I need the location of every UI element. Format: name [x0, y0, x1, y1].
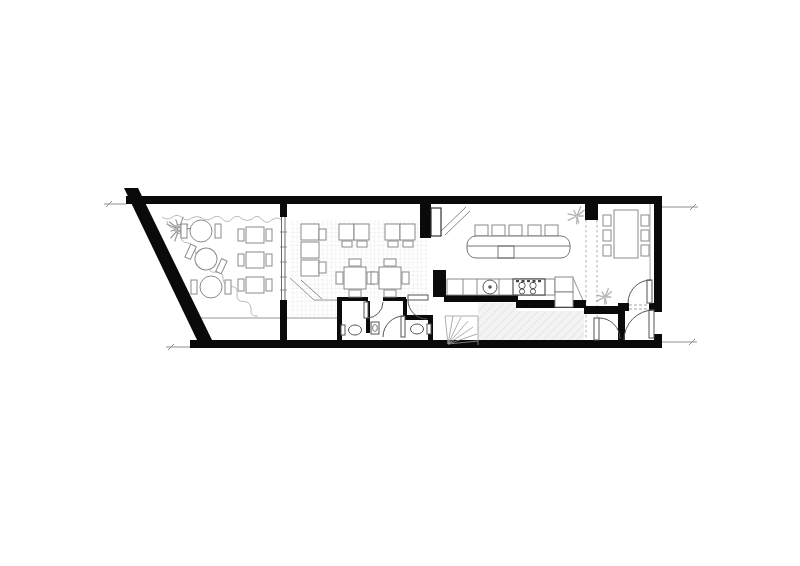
- stove-knob: [527, 280, 530, 282]
- counter-box-2: [555, 292, 573, 307]
- terrace-square-table: [238, 277, 272, 293]
- banquette-side-table: [319, 229, 326, 240]
- wall-kitchen-a: [444, 295, 518, 302]
- toilet-tank: [341, 325, 345, 335]
- wall-kitchen-c: [584, 306, 620, 314]
- dining-chair: [342, 241, 352, 247]
- storefront-glazing: [280, 217, 287, 300]
- rear-dining-chair: [603, 245, 611, 256]
- floor-plan-page: [0, 0, 800, 566]
- terrace-chair: [191, 280, 197, 294]
- dining-chair: [388, 241, 398, 247]
- dimension-line: [104, 201, 126, 207]
- wall-stub-kitchen-right: [585, 204, 598, 220]
- frond: [568, 217, 576, 221]
- wall-top: [126, 196, 662, 204]
- table-top: [614, 210, 638, 258]
- table-top: [339, 224, 354, 240]
- dining-chair: [384, 290, 396, 297]
- dining-chair: [403, 241, 413, 247]
- stove-knob: [516, 280, 519, 282]
- kitchen-stove: [513, 279, 545, 295]
- table-top: [385, 224, 400, 240]
- table-top: [246, 227, 264, 243]
- glazing-stub-top: [280, 204, 287, 217]
- dining-chair: [349, 259, 361, 266]
- frond: [597, 295, 604, 297]
- terrace-chair: [266, 279, 272, 291]
- wc2-door: [383, 316, 405, 337]
- wall-right-upper: [654, 196, 662, 312]
- table-top: [246, 252, 264, 268]
- table-top: [400, 224, 415, 240]
- table-top: [379, 267, 401, 289]
- wc-wall-top-right: [383, 297, 406, 301]
- glazing-stub-bottom: [280, 300, 287, 340]
- entry-inner-door-opening: [629, 303, 649, 311]
- terrace-round-table: [183, 241, 229, 278]
- wc1-door: [364, 302, 383, 318]
- dining-chair: [357, 241, 367, 247]
- hatched-floor-corridor: [478, 303, 584, 340]
- door-swing-arc: [599, 318, 620, 339]
- dining-chair: [402, 272, 409, 284]
- terrace-chair: [215, 224, 221, 238]
- rear-dining-chair: [641, 245, 649, 256]
- wall-dining-kitchen: [420, 204, 431, 238]
- terrace-chair: [238, 229, 244, 241]
- rear-dining-chair: [641, 230, 649, 241]
- wc-wall-lobby-base: [403, 315, 432, 320]
- wall-bottom: [190, 340, 662, 348]
- bar-stool: [509, 225, 522, 236]
- banquette-seat: [301, 242, 319, 258]
- dining-chair: [349, 290, 361, 297]
- sink-drain: [488, 285, 492, 289]
- dimension-line: [166, 344, 190, 350]
- vine-top: [162, 215, 282, 222]
- toilet-bowl: [349, 325, 362, 335]
- banquette-seat: [301, 224, 319, 240]
- bar-stool: [492, 225, 505, 236]
- frond: [602, 292, 604, 296]
- dining-chair: [384, 259, 396, 266]
- terrace-chair: [181, 224, 187, 238]
- terrace-square-table: [238, 227, 272, 243]
- wall-right-lower: [654, 334, 662, 348]
- stove-knob: [533, 280, 536, 282]
- rear-dining-chair: [603, 215, 611, 226]
- terrace-chair: [238, 279, 244, 291]
- table-top: [200, 276, 222, 298]
- bar-island: [467, 225, 570, 258]
- rear-dining-door: [628, 280, 652, 303]
- terrace-round-table: [191, 276, 231, 298]
- plant: [568, 207, 584, 224]
- toilet-tank: [427, 324, 431, 334]
- rear-dining-table: [603, 210, 649, 258]
- island-counter: [467, 236, 570, 258]
- wall-cabinet: [431, 208, 441, 236]
- table-top: [344, 267, 366, 289]
- terrace-chair: [185, 244, 196, 259]
- table-top: [190, 220, 212, 242]
- tiled-floor-dining-sw: [290, 298, 338, 318]
- terrace-chair: [266, 229, 272, 241]
- stove-knob: [522, 280, 525, 282]
- dining-chair: [371, 272, 378, 284]
- bar-stool: [528, 225, 541, 236]
- rear-dining-chair: [641, 215, 649, 226]
- table-top: [246, 277, 264, 293]
- stove-knob: [538, 280, 541, 282]
- counter-box-1: [555, 277, 573, 292]
- frond: [568, 214, 576, 216]
- wall-pass-left: [433, 270, 446, 297]
- frond: [597, 297, 604, 300]
- terrace-square-table: [238, 252, 272, 268]
- terrace-chair: [225, 280, 231, 294]
- toilet: [411, 324, 432, 334]
- dimension-line: [662, 204, 698, 210]
- frond: [574, 211, 577, 215]
- rear-dining-chair: [603, 230, 611, 241]
- corridor-door: [594, 318, 620, 340]
- dimension-line: [662, 339, 697, 345]
- banquette-seat: [301, 260, 319, 276]
- bar-stool: [475, 225, 488, 236]
- wc-wall-lobby: [403, 299, 407, 316]
- entry-door: [624, 310, 654, 340]
- toilet-bowl: [411, 324, 424, 334]
- entry-inner-opening: [629, 303, 649, 311]
- bar-stool: [545, 225, 558, 236]
- banquette-side-table: [319, 262, 326, 273]
- terrace-chair: [216, 259, 227, 274]
- terrace-chair: [266, 254, 272, 266]
- terrace-chair: [238, 254, 244, 266]
- dining-chair: [336, 272, 343, 284]
- plant: [597, 289, 611, 304]
- floor-plan-drawing: [0, 0, 800, 566]
- wall-kitchen-b: [516, 300, 586, 308]
- terrace-round-table: [181, 220, 221, 242]
- table-top: [354, 224, 369, 240]
- toilet: [341, 325, 362, 335]
